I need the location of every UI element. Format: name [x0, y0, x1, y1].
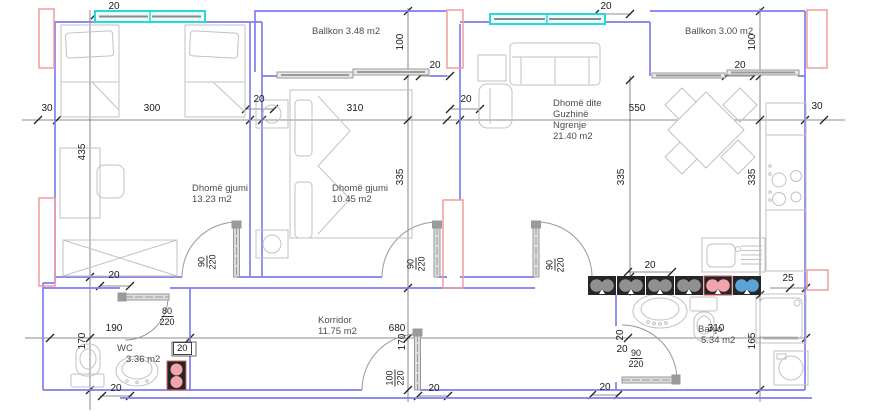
side-table [478, 55, 506, 81]
room-label-wc-name: WC [117, 343, 133, 354]
dining-table-and-chairs [665, 88, 757, 174]
dim-wc-170: 170 [78, 333, 88, 350]
dim-banjo-rot-20: 20 [616, 329, 626, 340]
room-label-korridor: Korridor 11.75 m2 [318, 315, 357, 337]
door-width: 90 [630, 348, 642, 359]
door-width: 90 [197, 256, 208, 268]
room-area: 21.40 m2 [553, 131, 602, 142]
furniture [60, 25, 808, 387]
dim-wall-20-b: 20 [460, 95, 471, 105]
dim-300: 300 [144, 104, 161, 114]
room-label-ballkon1: Ballkon 3.48 m2 [312, 26, 380, 37]
dim-balc1-100: 100 [396, 34, 406, 51]
doors [118, 221, 680, 390]
dim-25: 25 [782, 274, 793, 284]
dim-bed2-335: 335 [396, 169, 406, 186]
washing-machine [774, 351, 808, 385]
wardrobe [63, 240, 177, 276]
dim-balc2-100: 100 [748, 34, 758, 51]
dim-balc2-door-20: 20 [734, 61, 745, 71]
room-label-bedroom2: Dhomë gjumi 10.45 m2 [332, 183, 388, 205]
shaft-cold-water [733, 276, 761, 295]
room-name: Korridor [318, 315, 357, 326]
banjo-sink [633, 294, 687, 328]
door-width: 80 [161, 306, 173, 317]
dim-banjo-20: 20 [616, 345, 627, 355]
door-height: 220 [417, 256, 427, 271]
kitchen-sink [702, 238, 765, 272]
dim-entry-20: 20 [428, 384, 439, 394]
shower [756, 294, 806, 343]
door-size-bedroom2: 90 220 [406, 256, 427, 271]
dim-window-left-20: 20 [108, 2, 119, 12]
floor-plan: Ballkon 3.48 m2 Ballkon 3.00 m2 Dhomë gj… [0, 0, 870, 420]
door-height: 220 [208, 254, 218, 269]
balcony-sliding-doors [277, 69, 799, 78]
dim-190: 190 [106, 324, 123, 334]
dim-30-left: 30 [41, 104, 52, 114]
dim-cor-170: 170 [398, 334, 408, 351]
dim-435: 435 [78, 144, 88, 161]
kitchen-stove-counter [766, 103, 806, 271]
room-label-wc-area: 3.36 m2 [126, 354, 160, 365]
room-area: 10.45 m2 [332, 194, 388, 205]
dim-310: 310 [347, 104, 364, 114]
wc-toilet [71, 344, 104, 387]
shaft-strip [167, 276, 761, 390]
room-name3: Ngrenje [553, 120, 602, 131]
dim-wc-box-20: 20 [173, 342, 192, 355]
dim-30-right: 30 [811, 102, 822, 112]
dim-wc-bottom-20: 20 [110, 384, 121, 394]
bed-single-right [185, 25, 245, 117]
dim-living-335: 335 [617, 169, 627, 186]
dim-165: 165 [748, 333, 758, 350]
dim-banjo-left-20: 20 [599, 383, 610, 393]
shaft-gray-1 [588, 276, 616, 295]
dim-window-right-20: 20 [600, 2, 611, 12]
door-height: 220 [628, 359, 643, 369]
desk-and-chair [60, 148, 124, 218]
door-size-entry: 100 220 [385, 369, 406, 386]
armchair [479, 84, 512, 128]
window-bedroom1 [95, 11, 205, 22]
shaft-hot-water [704, 276, 732, 295]
room-name: Dhomë gjumi [192, 183, 248, 194]
room-area: 11.75 m2 [318, 326, 357, 337]
door-width: 100 [385, 369, 396, 386]
dim-550: 550 [629, 104, 646, 114]
nightstand-bottom [256, 230, 288, 258]
door-width: 90 [406, 258, 417, 270]
door-width: 90 [545, 259, 556, 271]
room-label-bedroom1: Dhomë gjumi 13.23 m2 [192, 183, 248, 205]
dim-balc1-door-20: 20 [429, 61, 440, 71]
windows [95, 11, 605, 24]
shaft-gray-3 [646, 276, 674, 295]
shaft-gray-4 [675, 276, 703, 295]
door-size-bedroom1: 90 220 [197, 254, 218, 269]
window-living [490, 14, 605, 24]
door-size-wc: 80 220 [159, 306, 174, 327]
sofa [510, 43, 600, 85]
room-label-living: Dhomë dite Guzhinë Ngrenje 21.40 m2 [553, 98, 602, 142]
dim-right-335: 335 [748, 169, 758, 186]
door-height: 220 [396, 370, 406, 385]
dim-banjo-310: 310 [708, 324, 725, 334]
shaft-wc [167, 361, 186, 390]
door-size-living: 90 220 [545, 257, 566, 272]
room-name2: Guzhinë [553, 109, 602, 120]
dim-shaft-20: 20 [644, 261, 655, 271]
room-label-ballkon2: Ballkon 3.00 m2 [685, 26, 753, 37]
door-size-banjo: 90 220 [628, 348, 643, 369]
room-name: Dhomë gjumi [332, 183, 388, 194]
room-label-banjo-area: 5.34 m2 [701, 335, 735, 346]
room-name: Dhomë dite [553, 98, 602, 109]
door-height: 220 [556, 257, 566, 272]
door-height: 220 [159, 317, 174, 327]
room-area: 13.23 m2 [192, 194, 248, 205]
shaft-gray-2 [617, 276, 645, 295]
dim-bed1-wall-20: 20 [108, 271, 119, 281]
dim-wall-20-a: 20 [253, 95, 264, 105]
